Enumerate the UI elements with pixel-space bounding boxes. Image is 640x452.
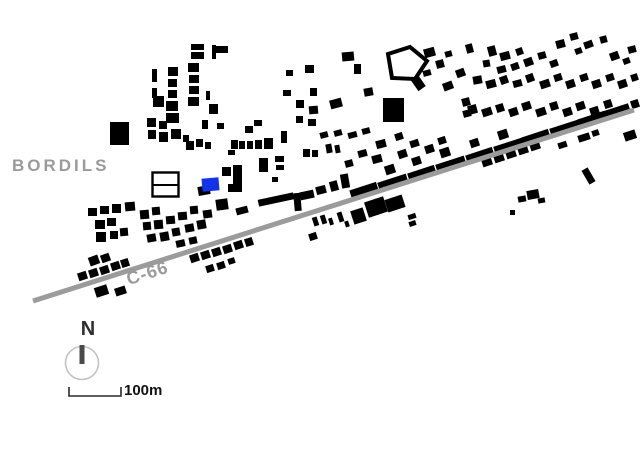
building <box>114 285 127 296</box>
building <box>342 51 355 61</box>
building <box>535 107 547 118</box>
building <box>422 69 431 77</box>
building <box>371 154 383 164</box>
building <box>190 206 199 215</box>
building <box>211 247 222 257</box>
building <box>495 103 505 113</box>
building <box>159 121 167 129</box>
building <box>120 258 130 268</box>
building <box>394 132 404 141</box>
building <box>609 51 620 62</box>
building <box>397 149 408 159</box>
building <box>235 206 248 216</box>
building <box>96 232 106 242</box>
building <box>630 73 639 82</box>
building <box>231 140 238 149</box>
building <box>171 129 181 139</box>
building <box>125 202 136 212</box>
building <box>100 206 109 214</box>
building <box>623 129 637 141</box>
building <box>472 75 482 84</box>
building <box>497 129 509 141</box>
building <box>424 144 435 154</box>
building <box>435 59 445 69</box>
building <box>364 196 388 217</box>
building <box>188 97 199 106</box>
building <box>518 195 527 202</box>
building <box>320 214 328 224</box>
building <box>437 136 447 145</box>
building <box>482 59 490 67</box>
building <box>189 253 200 263</box>
building <box>375 139 387 149</box>
building <box>411 156 422 166</box>
scale-bar-label: 100m <box>124 382 162 399</box>
building <box>239 141 245 149</box>
building <box>329 98 343 110</box>
building <box>499 51 511 61</box>
building <box>312 150 318 157</box>
building <box>591 79 602 89</box>
building <box>184 223 194 232</box>
building <box>296 100 304 108</box>
building <box>357 149 368 158</box>
building <box>603 99 613 109</box>
building <box>244 237 254 247</box>
building <box>154 220 164 230</box>
building <box>444 50 452 58</box>
building <box>110 231 118 239</box>
building <box>308 232 318 241</box>
building <box>166 113 179 123</box>
building <box>146 233 156 242</box>
building <box>423 47 436 59</box>
building <box>549 59 559 68</box>
building <box>215 198 228 211</box>
building <box>281 131 287 143</box>
building <box>166 216 176 225</box>
building <box>383 98 404 122</box>
building <box>153 96 164 107</box>
building <box>283 90 291 96</box>
scale-bar-bracket <box>69 387 121 396</box>
building <box>168 90 177 98</box>
building <box>247 141 253 149</box>
building <box>439 147 451 159</box>
building <box>183 135 189 142</box>
building <box>340 173 350 188</box>
building <box>575 101 586 111</box>
building <box>577 132 591 142</box>
building <box>569 32 579 41</box>
building <box>344 221 350 228</box>
building <box>88 255 100 267</box>
pentagon-building <box>388 47 427 79</box>
building <box>254 120 262 126</box>
building <box>308 119 316 126</box>
building <box>579 73 589 82</box>
building <box>175 239 185 248</box>
building <box>347 131 357 139</box>
building <box>329 180 339 192</box>
building <box>147 118 156 127</box>
compass-icon <box>60 340 110 388</box>
building <box>168 79 177 87</box>
building <box>264 138 273 149</box>
building <box>228 150 235 155</box>
building <box>259 158 268 172</box>
building <box>574 47 583 55</box>
building <box>191 52 204 59</box>
building <box>159 231 169 241</box>
building <box>209 104 218 114</box>
building <box>186 141 194 150</box>
building <box>539 79 551 90</box>
building <box>217 123 224 129</box>
building <box>315 185 327 195</box>
building <box>630 99 640 109</box>
building <box>303 149 310 157</box>
building <box>384 195 405 213</box>
building <box>200 250 211 260</box>
building <box>565 79 576 89</box>
building <box>599 35 608 44</box>
building <box>521 101 532 111</box>
building <box>202 209 212 218</box>
building <box>255 140 262 149</box>
building <box>538 197 546 203</box>
building <box>407 213 416 220</box>
building <box>384 164 396 176</box>
building <box>152 69 157 82</box>
building <box>143 222 152 231</box>
building <box>272 177 278 182</box>
compass-needle-icon <box>80 345 85 364</box>
building <box>205 142 211 149</box>
building <box>188 63 199 72</box>
building <box>171 227 180 236</box>
building <box>344 159 354 168</box>
building <box>508 107 519 117</box>
building <box>465 43 474 54</box>
building <box>196 219 206 229</box>
building <box>189 75 199 83</box>
building <box>557 141 567 149</box>
building <box>622 57 631 65</box>
building <box>319 131 328 139</box>
building <box>258 192 295 206</box>
building <box>337 211 345 222</box>
town-label: BORDILS <box>12 156 110 176</box>
building <box>328 218 334 226</box>
building <box>442 81 454 92</box>
building <box>523 57 534 68</box>
building <box>168 67 178 76</box>
building <box>549 101 559 111</box>
building <box>191 44 204 50</box>
building <box>485 79 497 89</box>
building <box>178 212 188 221</box>
building <box>286 70 293 76</box>
building <box>299 190 314 201</box>
building <box>496 65 507 74</box>
building <box>526 189 539 200</box>
building <box>202 120 208 129</box>
building <box>310 88 317 96</box>
building <box>222 167 231 176</box>
building <box>88 208 97 216</box>
building <box>110 261 121 271</box>
building <box>555 39 566 49</box>
building <box>222 244 233 254</box>
building <box>305 65 314 73</box>
building <box>461 97 471 107</box>
building <box>525 73 535 83</box>
building <box>512 79 523 88</box>
building <box>409 139 420 148</box>
building <box>605 73 615 82</box>
building <box>481 107 493 118</box>
building <box>296 116 303 123</box>
building <box>196 139 203 147</box>
building <box>408 220 416 227</box>
building <box>206 91 210 100</box>
building <box>325 144 332 154</box>
building <box>275 156 284 162</box>
building <box>205 264 215 273</box>
building <box>94 284 109 298</box>
building <box>312 216 320 226</box>
building <box>487 45 497 57</box>
building <box>276 165 284 170</box>
building <box>562 107 573 117</box>
building <box>499 75 509 85</box>
building <box>166 101 178 111</box>
building <box>212 45 216 59</box>
building <box>100 253 111 264</box>
building <box>227 257 236 265</box>
building <box>140 210 150 220</box>
building <box>77 271 88 281</box>
building <box>148 130 156 139</box>
building <box>233 240 244 250</box>
building <box>361 127 370 135</box>
building <box>334 145 340 154</box>
building <box>159 132 168 142</box>
building <box>354 64 361 74</box>
building <box>469 138 480 148</box>
building <box>152 207 161 216</box>
building <box>350 207 367 224</box>
building <box>553 73 563 82</box>
map-figure: BORDILS C-66 N 100m <box>0 0 640 452</box>
building <box>95 220 105 229</box>
building <box>99 265 110 275</box>
compass-n-label: N <box>76 318 100 341</box>
building <box>245 126 253 133</box>
building <box>515 47 524 56</box>
building <box>581 167 595 184</box>
building <box>537 51 547 60</box>
building <box>112 204 121 213</box>
building <box>88 268 99 278</box>
building <box>333 129 342 137</box>
building <box>583 40 594 50</box>
highlighted-building <box>201 177 219 191</box>
building <box>617 79 628 89</box>
building <box>110 122 129 145</box>
building <box>363 87 373 96</box>
building <box>510 210 515 215</box>
building <box>228 184 236 192</box>
building <box>188 236 197 245</box>
building <box>455 68 466 79</box>
building <box>107 218 116 226</box>
building <box>216 261 226 270</box>
building <box>510 62 520 71</box>
building <box>120 228 129 237</box>
building <box>189 86 199 94</box>
building <box>216 46 228 53</box>
building <box>591 129 600 137</box>
building <box>627 45 637 54</box>
building <box>309 106 319 115</box>
